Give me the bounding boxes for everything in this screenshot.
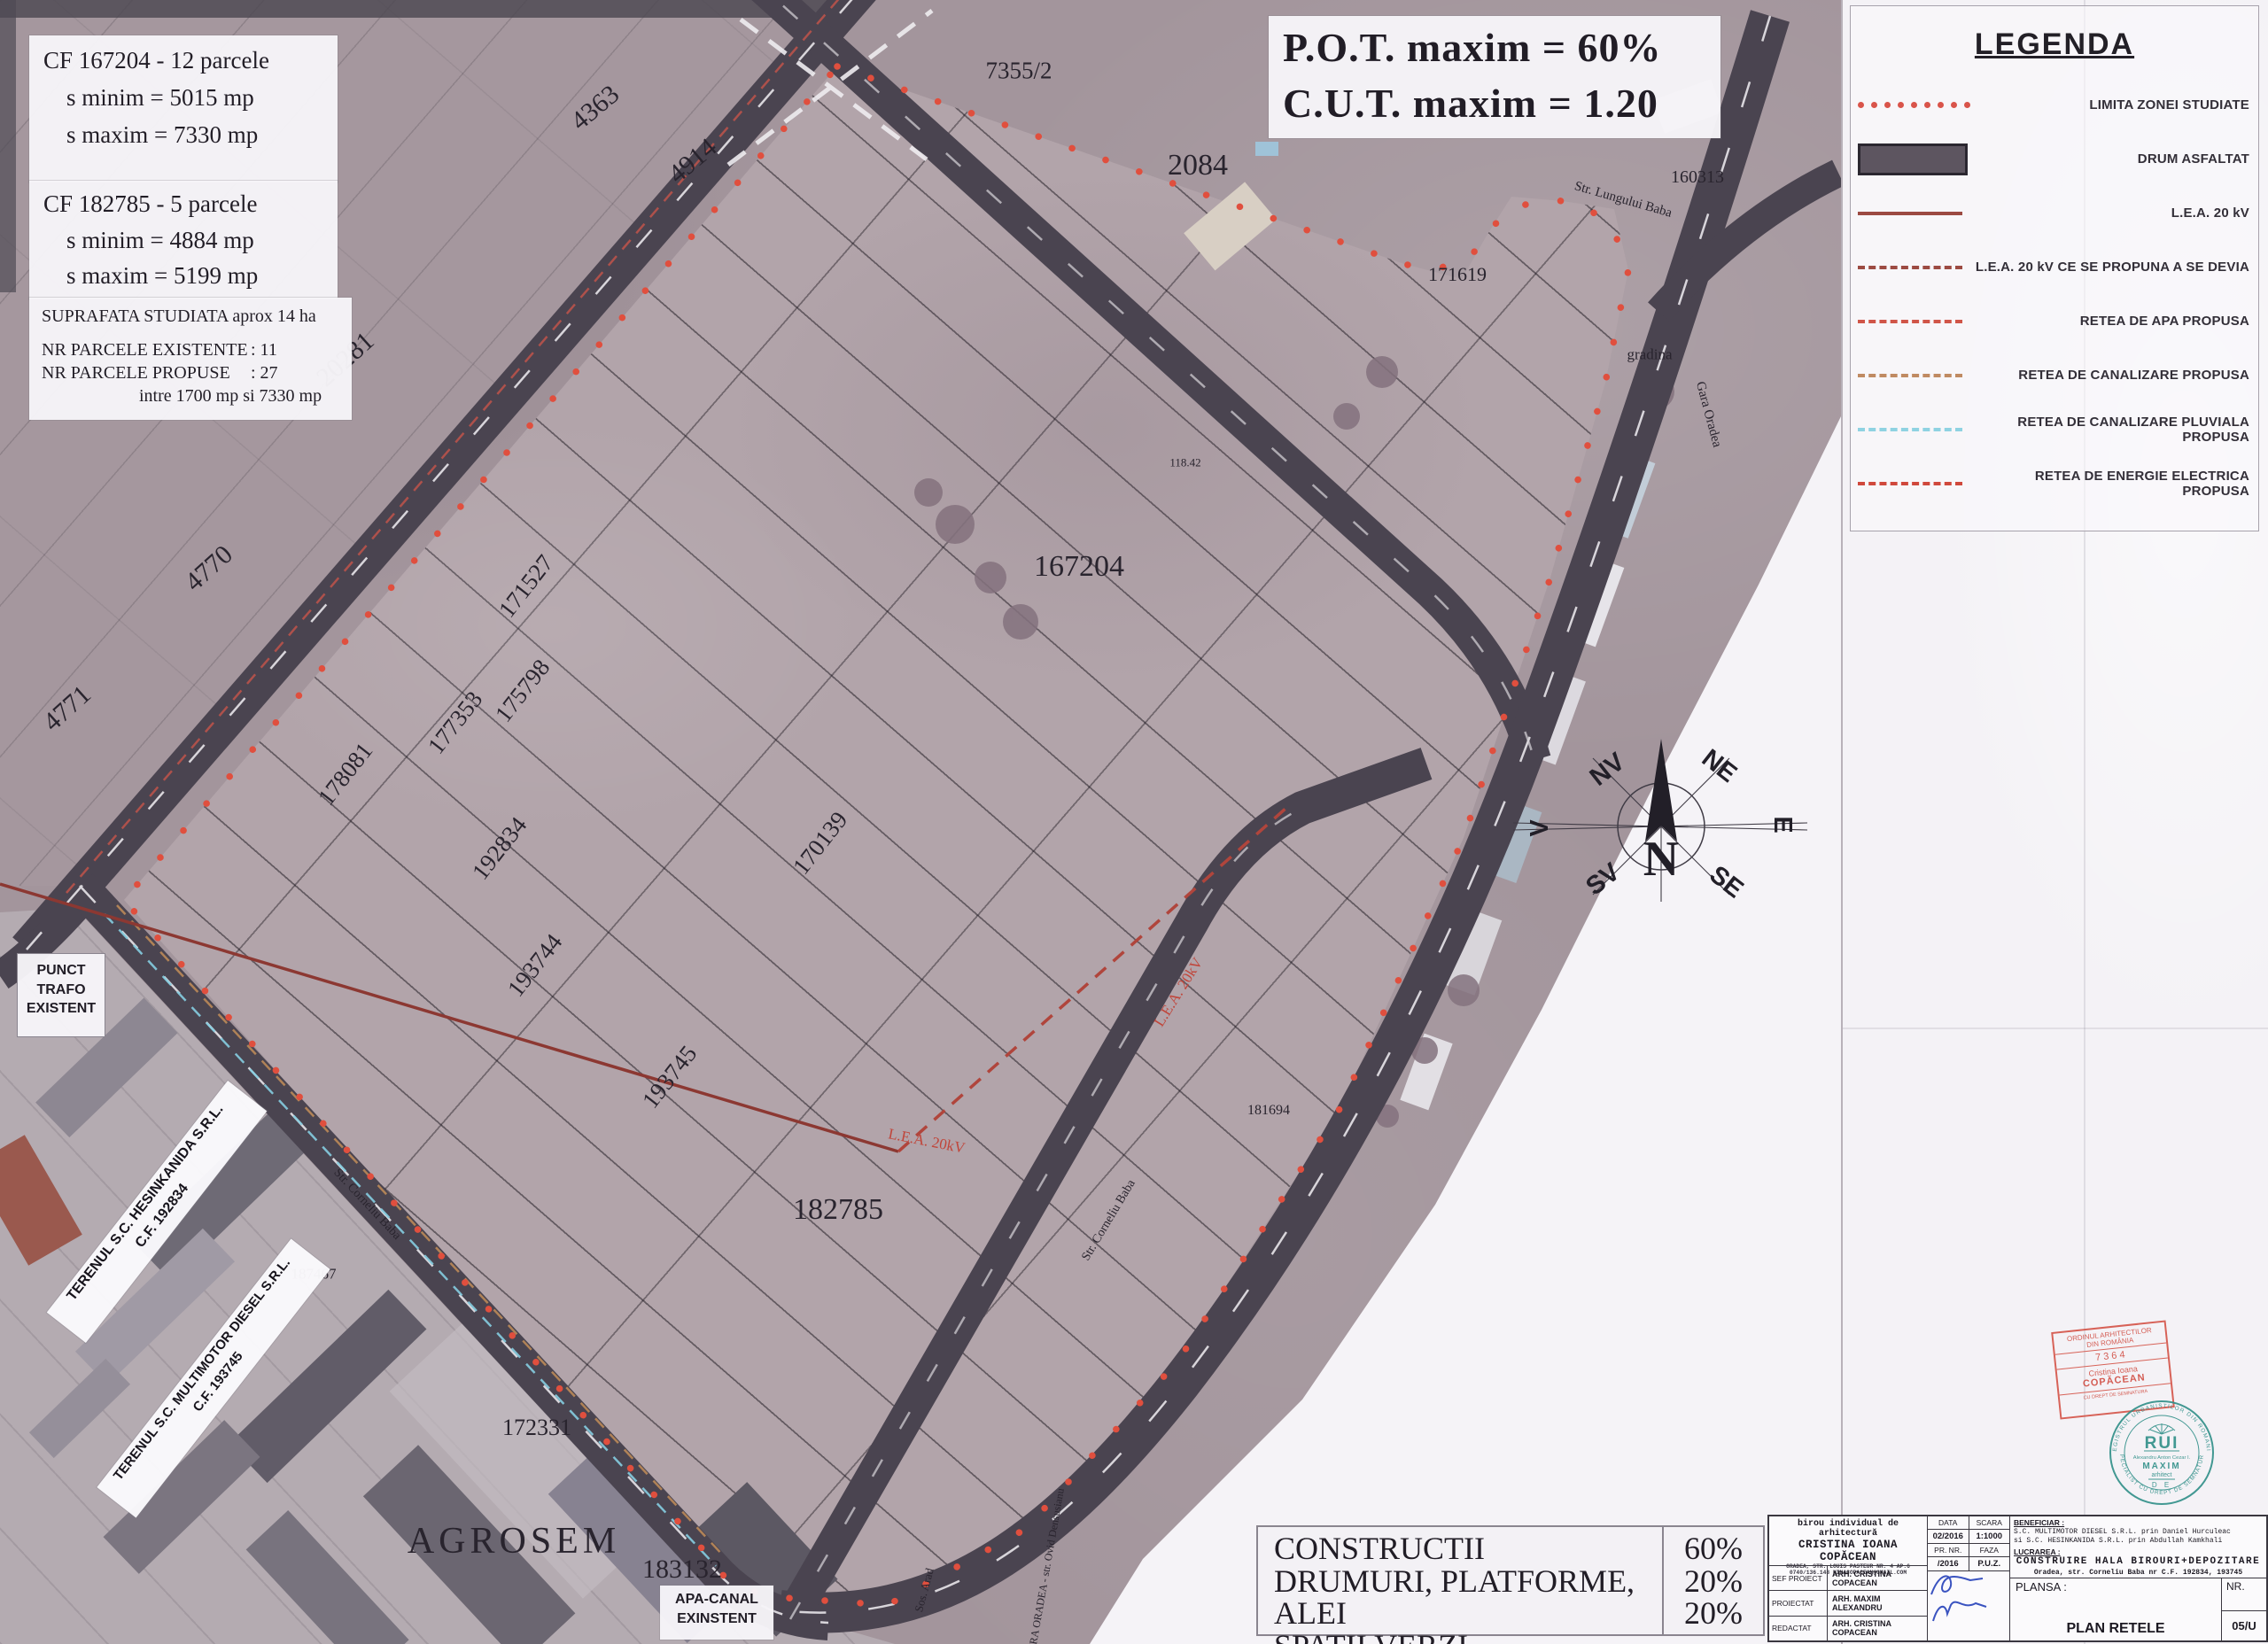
cf-167204-info-box: CF 167204 - 12 parcele s minim = 5015 mp…	[29, 35, 338, 182]
office-name: CRISTINA IOANA COPĂCEAN	[1769, 1539, 1927, 1563]
apa-canal-line2: EXINSTENT	[660, 1609, 773, 1629]
prnr-value: /2016	[1928, 1557, 1969, 1570]
beneficiar-label: BENEFICIAR :	[2014, 1518, 2263, 1528]
compass-v: V	[1526, 819, 1554, 837]
paper-crease	[1843, 1027, 2268, 1029]
role-row: SEF PROIECT ARH. CRISTINA COPACEAN	[1769, 1566, 1927, 1591]
map-label: AGROSEM	[408, 1523, 620, 1560]
legend-swatch-dash-icon	[1858, 482, 1971, 485]
beneficiar-section: BENEFICIAR : S.C. MULTIMOTOR DIESEL S.R.…	[2010, 1516, 2266, 1547]
architecture-office: birou individual de arhitectură CRISTINA…	[1769, 1516, 1927, 1565]
map-label: 2084	[1168, 151, 1228, 181]
legend-rows: LIMITA ZONEI STUDIATEDRUM ASFALTATL.E.A.…	[1851, 78, 2258, 510]
role-name: ARH. MAXIM ALEXANDRU	[1828, 1591, 1927, 1615]
legend-swatch-dots-icon	[1858, 102, 1971, 108]
cf1-smin: s minim = 5015 mp	[43, 80, 338, 117]
role-row: PROIECTAT ARH. MAXIM ALEXANDRU	[1769, 1591, 1927, 1616]
legend-title: LEGENDA	[1851, 27, 2258, 62]
legend-item-label: L.E.A. 20 kV	[1971, 205, 2249, 221]
compass-rose: N NV NE E SE SV V	[1506, 733, 1825, 924]
stamp-architect-title: arhitect	[2152, 1472, 2172, 1478]
role-name: ARH. CRISTINA COPACEAN	[1828, 1566, 1927, 1590]
cut-maxim: C.U.T. maxim = 1.20	[1283, 75, 1720, 131]
plansa-cell: PLANSA : PLAN RETELE	[2010, 1578, 2222, 1640]
nr-label: NR.	[2222, 1578, 2266, 1611]
map-label: 7355/2	[985, 59, 1052, 83]
beneficiar-line1: S.C. MULTIMOTOR DIESEL S.R.L. prin Danie…	[2014, 1528, 2263, 1537]
usage-row-label: DRUMURI, PLATFORME, ALEI	[1274, 1565, 1662, 1630]
rur-round-stamp: REGISTRUL URBANISTILOR DIN ROMANIA SPECI…	[2104, 1395, 2219, 1510]
faza-value: P.U.Z.	[1969, 1557, 2010, 1570]
map-label: 167204	[1034, 552, 1124, 582]
usage-row-label: SPATII VERZI	[1274, 1630, 1662, 1644]
data-value: 02/2016	[1928, 1530, 1969, 1543]
legend-item-label: L.E.A. 20 kV CE SE PROPUNA A SE DEVIA	[1971, 260, 2249, 275]
data-label: DATA	[1928, 1516, 1969, 1529]
shell-icon	[2148, 1423, 2175, 1434]
legend-item: DRUM ASFALTAT	[1851, 132, 2258, 186]
study-stats-box: SUPRAFATA STUDIATA aprox 14 ha NR PARCEL…	[29, 298, 352, 420]
apa-canal-line1: APA-CANAL	[660, 1590, 773, 1609]
legend-swatch-dash-icon	[1858, 428, 1971, 431]
role-label: PROIECTAT	[1769, 1591, 1828, 1615]
stats-proposed-label: NR PARCELE PROPUSE	[42, 361, 251, 384]
legend-item-label: LIMITA ZONEI STUDIATE	[1971, 97, 2249, 112]
prnr-label: PR. NR.	[1928, 1544, 1969, 1556]
usage-row-value: 60%	[1664, 1532, 1763, 1565]
plansa-label: PLANSA :	[2016, 1580, 2067, 1594]
map-label: 183132	[642, 1556, 722, 1583]
compass-ne: NE	[1697, 744, 1742, 788]
faza-label: FAZA	[1969, 1544, 2010, 1556]
scara-value: 1:1000	[1969, 1530, 2010, 1543]
legend-item-label: RETEA DE APA PROPUSA	[1971, 314, 2249, 329]
lucrarea-label: LUCRAREA :	[2014, 1547, 2263, 1557]
legend-swatch-solid-icon	[1858, 212, 1971, 215]
map-label: 118.42	[1169, 457, 1200, 469]
signature-icon	[1928, 1570, 1990, 1601]
pot-maxim: P.O.T. maxim = 60%	[1283, 19, 1720, 75]
stamp-architect-name: Alexandru Anton Cezar I.	[2133, 1455, 2191, 1461]
scara-label: SCARA	[1969, 1516, 2010, 1529]
usage-row-label: CONSTRUCTII	[1274, 1532, 1662, 1565]
lucrarea-address: Oradea, str. Corneliu Baba nr C.F. 19283…	[2014, 1569, 2263, 1578]
stamp-de: D E	[2152, 1481, 2171, 1489]
legend-item-label: RETEA DE CANALIZARE PLUVIALA PROPUSA	[1971, 415, 2249, 445]
cf-182785-info-box: CF 182785 - 5 parcele s minim = 4884 mp …	[29, 181, 338, 299]
stats-proposed-value: : 27	[251, 361, 278, 384]
cf2-title: CF 182785 - 5 parcele	[43, 186, 338, 222]
legend-item: L.E.A. 20 kV CE SE PROPUNA A SE DEVIA	[1851, 240, 2258, 294]
punct-trafo-box: PUNCT TRAFO EXISTENT	[18, 954, 105, 1036]
stats-existing-value: : 11	[251, 338, 277, 361]
role-name: ARH. CRISTINA COPACEAN	[1828, 1617, 1927, 1640]
cf1-title: CF 167204 - 12 parcele	[43, 43, 338, 80]
legend-item: LIMITA ZONEI STUDIATE	[1851, 78, 2258, 132]
pot-cut-box: P.O.T. maxim = 60% C.U.T. maxim = 1.20	[1269, 16, 1720, 138]
stamp-rui: RUI	[2145, 1434, 2179, 1453]
role-label: REDACTAT	[1769, 1617, 1828, 1640]
map-label: 181694	[1247, 1104, 1290, 1118]
legend-item: RETEA DE CANALIZARE PLUVIALA PROPUSA	[1851, 402, 2258, 456]
legend-item-label: RETEA DE CANALIZARE PROPUSA	[1971, 368, 2249, 383]
legend-item: L.E.A. 20 kV	[1851, 186, 2258, 240]
compass-nv: NV	[1585, 747, 1631, 791]
map-label: 172331	[502, 1416, 571, 1439]
compass-e: E	[1768, 816, 1797, 833]
lucrarea-section: LUCRAREA : CONSTRUIRE HALA BIROURI+DEPOZ…	[2010, 1547, 2266, 1578]
role-row: REDACTAT ARH. CRISTINA COPACEAN	[1769, 1617, 1927, 1640]
map-label: gradina	[1627, 347, 1673, 362]
nr-value: 05/U	[2222, 1611, 2266, 1641]
map-label: 160313	[1671, 168, 1724, 186]
office-type: birou individual de arhitectură	[1769, 1519, 1927, 1539]
role-label: SEF PROIECT	[1769, 1566, 1828, 1590]
usage-row-value: 20%	[1664, 1565, 1763, 1598]
trafo-line3: EXISTENT	[18, 999, 105, 1019]
title-block: birou individual de arhitectură CRISTINA…	[1767, 1515, 2268, 1642]
legend-item: RETEA DE CANALIZARE PROPUSA	[1851, 348, 2258, 402]
compass-n: N	[1643, 832, 1679, 887]
stats-area: SUPRAFATA STUDIATA aprox 14 ha	[42, 305, 352, 328]
cf1-smax: s maxim = 7330 mp	[43, 117, 338, 154]
stats-existing-label: NR PARCELE EXISTENTE	[42, 338, 251, 361]
map-label: 171619	[1428, 265, 1487, 284]
legend-swatch-road-icon	[1858, 143, 1971, 175]
usage-row-value: 20%	[1664, 1597, 1763, 1630]
legend-item-label: DRUM ASFALTAT	[1971, 151, 2249, 167]
compass-se: SE	[1704, 860, 1748, 903]
legend-item: RETEA DE APA PROPUSA	[1851, 294, 2258, 348]
legend-swatch-dash-icon	[1858, 374, 1971, 377]
legend-item-label: RETEA DE ENERGIE ELECTRICA PROPUSA	[1971, 469, 2249, 499]
legend-swatch-dash-icon	[1858, 320, 1971, 323]
lucrarea-title: CONSTRUIRE HALA BIROURI+DEPOZITARE	[2014, 1556, 2263, 1569]
cf2-smax: s maxim = 5199 mp	[43, 258, 338, 294]
trafo-line2: TRAFO	[18, 981, 105, 1000]
photo-edge-left	[0, 0, 16, 292]
trafo-line1: PUNCT	[18, 961, 105, 981]
land-usage-table: CONSTRUCTII DRUMURI, PLATFORME, ALEI SPA…	[1256, 1525, 1765, 1636]
plansa-value: PLAN RETELE	[2010, 1621, 2221, 1637]
signature-icon	[1930, 1598, 1992, 1628]
cf2-smin: s minim = 4884 mp	[43, 222, 338, 259]
map-label: 182785	[793, 1195, 883, 1225]
compass-sv: SV	[1581, 857, 1626, 901]
legend-swatch-dash-icon	[1858, 266, 1971, 269]
legend-box: LEGENDA LIMITA ZONEI STUDIATEDRUM ASFALT…	[1850, 5, 2259, 531]
apa-canal-box: APA-CANAL EXINSTENT	[660, 1586, 773, 1640]
photo-edge-top	[0, 0, 833, 18]
plan-sheet: 7355/2436349142084171619160313Str. Lungu…	[0, 0, 2268, 1644]
legend-item: RETEA DE ENERGIE ELECTRICA PROPUSA	[1851, 456, 2258, 510]
stamp-architect-surname: MAXIM	[2142, 1462, 2180, 1471]
beneficiar-line2: si S.C. HESINKANIDA S.R.L. prin Abdullah…	[2014, 1537, 2263, 1546]
stats-range: intre 1700 mp si 7330 mp	[42, 384, 352, 407]
